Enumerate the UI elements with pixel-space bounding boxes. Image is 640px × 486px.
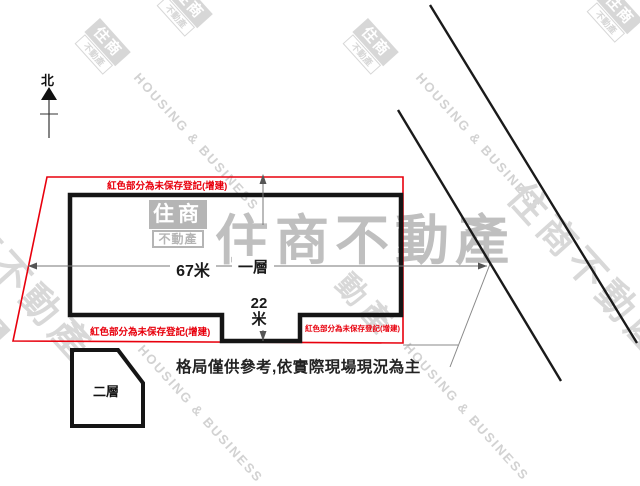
- width-dimension-label: 67米: [170, 257, 216, 281]
- red-note-bottom-left: 紅色部分為未保存登記(增建): [90, 324, 208, 338]
- floor1-label: 一層: [232, 256, 274, 277]
- red-note-bottom-right: 紅色部分為未保存登記(增建): [305, 323, 397, 334]
- floorplan-page: { "compass": { "north_label": "北" }, "pl…: [0, 0, 640, 430]
- arrow-right-icon: [478, 263, 487, 270]
- road-line: [398, 110, 561, 381]
- road-line: [430, 5, 637, 343]
- footer-disclaimer: 格局僅供參考,依實際現場現況為主: [176, 355, 421, 377]
- arrow-up-icon: [260, 174, 267, 184]
- depth-dimension-unit: 米: [246, 312, 272, 328]
- lot-boundary-line: [450, 264, 490, 367]
- floor2-label: 二層: [93, 381, 119, 400]
- north-label: 北: [41, 70, 54, 89]
- depth-dimension-label: 22 米: [246, 296, 272, 328]
- depth-dimension-value: 22: [246, 296, 272, 312]
- red-note-top: 紅色部分為未保存登記(增建): [107, 178, 225, 192]
